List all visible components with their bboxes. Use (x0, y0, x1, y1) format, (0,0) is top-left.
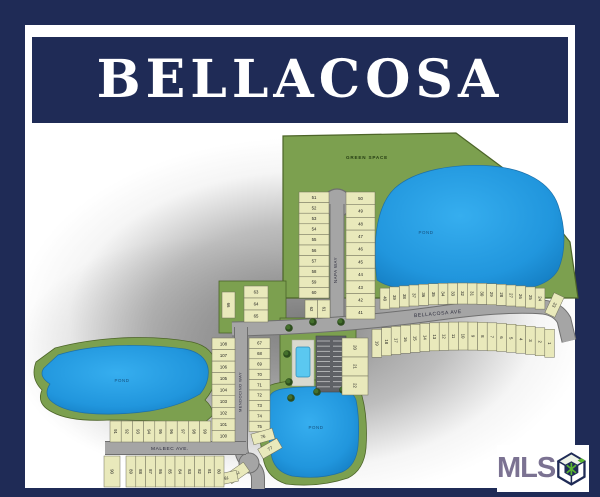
lot-number: 57 (312, 258, 317, 263)
lot-number: 27 (508, 293, 513, 298)
lot-number: 74 (257, 414, 262, 419)
lot: 93 (132, 421, 143, 442)
lot-number: 44 (358, 272, 363, 277)
lot-number: 61 (321, 307, 326, 312)
lot: 54 (299, 224, 329, 235)
swimming-pool (296, 347, 310, 377)
lot-number: 86 (158, 469, 163, 474)
lot: 30 (477, 283, 487, 304)
lot: 103 (212, 396, 235, 408)
site-map: 5152535455565758596050494847464544434241… (0, 0, 600, 497)
lot: 43 (346, 281, 375, 294)
lot: 4 (516, 325, 526, 353)
lot: 81 (204, 456, 214, 487)
lot-number: 100 (220, 434, 228, 439)
lot: 98 (188, 421, 199, 442)
lot: 107 (212, 350, 235, 362)
lot: 106 (212, 361, 235, 373)
lot: 57 (299, 256, 329, 267)
lot-number: 98 (192, 429, 197, 434)
lot-number: 97 (180, 429, 185, 434)
lot: 22 (342, 376, 368, 395)
lot: 62 (305, 300, 318, 318)
lot: 38 (399, 286, 409, 307)
lot-number: 106 (220, 364, 228, 369)
lot-number: 14 (422, 335, 427, 340)
lot: 84 (175, 456, 185, 487)
lot-number: 102 (220, 411, 228, 416)
lot-number: 52 (312, 205, 317, 210)
lot: 41 (346, 306, 375, 319)
lot: 91 (110, 421, 121, 442)
lot: 36 (419, 284, 429, 305)
lot: 69 (249, 359, 270, 369)
lot-number: 95 (158, 429, 163, 434)
lot-number: 16 (403, 337, 408, 342)
lot-number: 21 (353, 364, 358, 369)
lot: 42 (346, 294, 375, 307)
lot: 29 (487, 284, 497, 305)
lot-number: 29 (489, 292, 494, 297)
lot: 11 (449, 322, 459, 350)
lot-number: 15 (413, 336, 418, 341)
lot: 25 (526, 287, 536, 308)
lot-number: 103 (220, 399, 228, 404)
lot: 59 (299, 277, 329, 288)
lot-number: 83 (187, 469, 192, 474)
lot-number: 36 (421, 292, 426, 297)
lot: 47 (346, 230, 375, 243)
lot-number: 53 (312, 216, 317, 221)
lot-number: 81 (207, 469, 212, 474)
lot: 96 (166, 421, 177, 442)
lot-number: 39 (392, 295, 397, 300)
lot: 52 (299, 203, 329, 214)
green-space-label: GREEN SPACE (346, 155, 388, 160)
lot: 40 (380, 288, 390, 309)
napa-way-label: NAPA WAY (333, 257, 338, 283)
lot: 28 (496, 284, 506, 305)
lot: 46 (346, 243, 375, 256)
lot-number: 17 (394, 338, 399, 343)
lot-number: 20 (353, 345, 358, 350)
lot: 85 (165, 456, 175, 487)
lot: 35 (429, 284, 439, 305)
lot-number: 70 (257, 372, 262, 377)
lot-number: 64 (254, 302, 259, 307)
lot-number: 47 (358, 234, 363, 239)
lot: 55 (299, 234, 329, 245)
lot: 34 (438, 283, 448, 304)
lot: 53 (299, 213, 329, 224)
lot-number: 66 (226, 303, 231, 308)
lot: 20 (342, 338, 368, 357)
mls-text: MLS (497, 452, 555, 485)
pond-label-south: POND (308, 425, 323, 430)
lot: 108 (212, 338, 235, 350)
lot: 14 (420, 323, 430, 351)
lot-number: 84 (177, 469, 182, 474)
lot-number: 45 (358, 259, 363, 264)
northeast-pond (375, 165, 564, 292)
lot-number: 73 (257, 403, 262, 408)
lot: 99 (200, 421, 211, 442)
lot-number: 50 (358, 196, 363, 201)
lot: 1 (545, 329, 555, 357)
lot: 24 (535, 288, 545, 309)
lot: 13 (430, 323, 440, 351)
lot: 45 (346, 256, 375, 269)
lot-number: 40 (382, 296, 387, 301)
lot-number: 51 (312, 195, 317, 200)
lot: 66 (222, 292, 235, 318)
lot: 94 (144, 421, 155, 442)
lot: 21 (342, 357, 368, 376)
lot: 72 (249, 390, 270, 400)
lot-number: 69 (257, 362, 262, 367)
lot-number: 22 (353, 383, 358, 388)
lot: 15 (410, 324, 420, 352)
lot: 105 (212, 373, 235, 385)
lot-number: 19 (374, 341, 379, 346)
lot-number: 42 (358, 297, 363, 302)
lot: 87 (146, 456, 156, 487)
parking-lot (316, 336, 346, 392)
lot-number: 43 (358, 285, 363, 290)
lot: 2 (535, 328, 545, 356)
lot: 33 (448, 283, 458, 304)
lot-number: 92 (124, 429, 129, 434)
lot: 86 (155, 456, 165, 487)
lot: 58 (299, 266, 329, 277)
malbec-ave-label: MALBEC AVE. (151, 446, 189, 452)
lot-number: 59 (312, 280, 317, 285)
lot-number: 46 (358, 247, 363, 252)
lot: 74 (249, 411, 270, 421)
lot-number: 26 (518, 294, 523, 299)
lot-number: 105 (220, 376, 228, 381)
lot: 97 (177, 421, 188, 442)
lot: 9 (468, 322, 478, 350)
lot-number: 41 (358, 310, 363, 315)
lot: 49 (346, 205, 375, 218)
mls-cube-icon (556, 447, 587, 491)
lot: 7 (487, 323, 497, 351)
lot: 102 (212, 407, 235, 419)
lot-number: 38 (402, 294, 407, 299)
lot-number: 67 (257, 341, 262, 346)
lot-number: 60 (312, 290, 317, 295)
lot-number: 34 (441, 291, 446, 296)
lot-number: 55 (312, 237, 317, 242)
south-pond (268, 387, 358, 478)
lot: 37 (409, 285, 419, 306)
lot-number: 28 (499, 292, 504, 297)
lot: 101 (212, 419, 235, 431)
mls-watermark: MLS (497, 445, 589, 492)
lot-number: 94 (147, 429, 152, 434)
lot-number: 104 (220, 387, 228, 392)
lot: 70 (249, 369, 270, 379)
lot: 82 (195, 456, 205, 487)
lot: 89 (126, 456, 136, 487)
lot-number: 65 (254, 314, 259, 319)
lot-number: 85 (168, 469, 173, 474)
lot: 32 (458, 283, 468, 304)
lot-number: 107 (220, 353, 228, 358)
lot-number: 93 (136, 429, 141, 434)
lot: 63 (244, 286, 268, 298)
lot-number: 35 (431, 292, 436, 297)
lot-number: 75 (257, 424, 262, 429)
lot: 61 (318, 300, 331, 318)
mendocino-way-label: MENDOCINO WAY (238, 372, 243, 412)
lot-number: 71 (257, 382, 262, 387)
lot: 8 (478, 322, 488, 350)
lot: 16 (401, 325, 411, 353)
lot: 31 (467, 283, 477, 304)
lot-number: 30 (479, 291, 484, 296)
lot-number: 49 (358, 209, 363, 214)
lot-number: 37 (411, 293, 416, 298)
lot-number: 82 (197, 469, 202, 474)
lot: 17 (391, 326, 401, 354)
lot: 95 (155, 421, 166, 442)
lot-number: 31 (470, 291, 475, 296)
lot: 3 (526, 326, 536, 354)
lot: 48 (346, 217, 375, 230)
lot-number: 58 (312, 269, 317, 274)
lot: 44 (346, 268, 375, 281)
lot: 67 (249, 338, 270, 348)
lot-number: 89 (128, 469, 133, 474)
lot-number: 54 (312, 227, 317, 232)
lot-number: 68 (257, 351, 262, 356)
lot-number: 11 (451, 334, 456, 339)
lot: 92 (121, 421, 132, 442)
lot-number: 32 (460, 291, 465, 296)
lot-number: 10 (461, 334, 466, 339)
lot: 100 (212, 430, 235, 442)
lot-number: 80 (217, 469, 222, 474)
lot-number: 108 (220, 341, 228, 346)
lot-number: 24 (538, 296, 543, 301)
lot-number: 48 (358, 221, 363, 226)
pond-label-northeast: POND (418, 230, 433, 235)
pond-label-west: POND (114, 378, 129, 383)
lot-number: 101 (220, 422, 228, 427)
lot-number: 90 (110, 469, 115, 474)
lot: 88 (136, 456, 146, 487)
lot-number: 12 (442, 334, 447, 339)
lot-number: 72 (257, 393, 262, 398)
lot: 39 (390, 287, 400, 308)
lot: 18 (382, 328, 392, 356)
lot-number: 62 (309, 307, 314, 312)
lot: 64 (244, 298, 268, 310)
lot: 68 (249, 348, 270, 358)
lot-number: 96 (169, 429, 174, 434)
lot-number: 18 (384, 339, 389, 344)
lot: 83 (185, 456, 195, 487)
lot-number: 33 (450, 291, 455, 296)
lot: 60 (299, 287, 329, 298)
lot: 80 (214, 456, 224, 487)
lot: 90 (104, 456, 120, 487)
lot-number: 88 (138, 469, 143, 474)
lot-number: 13 (432, 334, 437, 339)
lot-number: 87 (148, 469, 153, 474)
lot-number: 56 (312, 248, 317, 253)
lot: 12 (439, 322, 449, 350)
lot: 51 (299, 192, 329, 203)
lot-number: 63 (254, 290, 259, 295)
lot: 26 (516, 286, 526, 307)
lot: 6 (497, 323, 507, 351)
lot: 104 (212, 384, 235, 396)
lot: 65 (244, 310, 268, 322)
lot: 19 (372, 329, 382, 357)
lot-number: 99 (203, 429, 208, 434)
lot: 27 (506, 285, 516, 306)
lot: 10 (458, 322, 468, 350)
lot: 50 (346, 192, 375, 205)
lot: 73 (249, 400, 270, 410)
lot: 71 (249, 380, 270, 390)
lot: 56 (299, 245, 329, 256)
lot-number: 91 (113, 429, 118, 434)
lot: 5 (506, 324, 516, 352)
lot-number: 25 (528, 295, 533, 300)
